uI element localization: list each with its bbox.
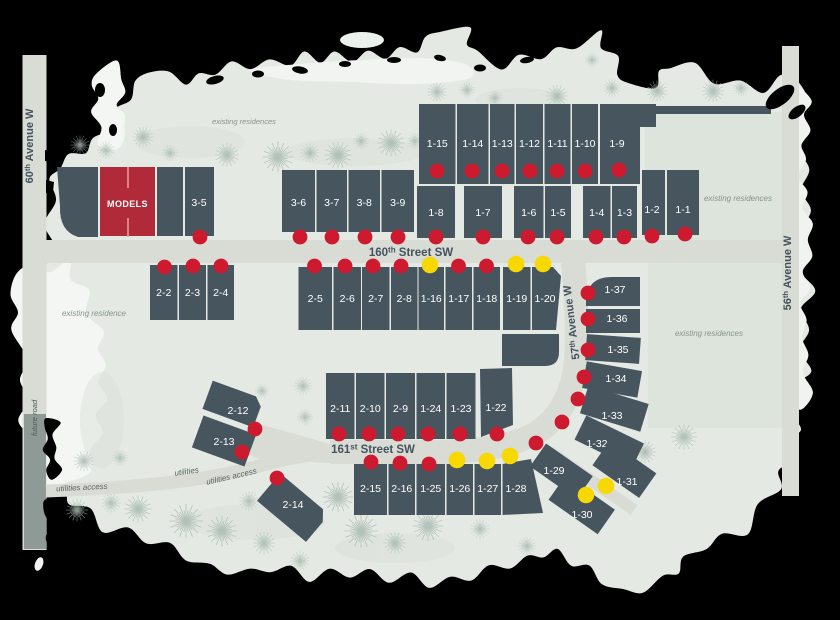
svg-text:2-15: 2-15: [360, 483, 381, 495]
svg-text:2-6: 2-6: [340, 293, 355, 305]
svg-text:1-34: 1-34: [605, 373, 626, 385]
svg-text:1-8: 1-8: [428, 207, 443, 219]
svg-text:future road: future road: [30, 399, 39, 436]
svg-text:1-15: 1-15: [427, 138, 448, 150]
svg-text:3-8: 3-8: [357, 197, 372, 209]
svg-text:1-11: 1-11: [547, 138, 567, 150]
svg-text:1-13: 1-13: [492, 138, 513, 150]
svg-text:1-30: 1-30: [571, 509, 592, 521]
svg-text:1-1: 1-1: [675, 204, 690, 216]
svg-text:1-27: 1-27: [477, 483, 498, 495]
svg-text:161st Street SW: 161st Street SW: [331, 443, 415, 457]
svg-text:2-8: 2-8: [397, 293, 412, 305]
svg-text:1-24: 1-24: [420, 403, 441, 415]
svg-text:MODELS: MODELS: [107, 199, 148, 209]
svg-text:1-5: 1-5: [550, 207, 565, 219]
svg-text:1-31: 1-31: [616, 476, 637, 488]
svg-text:2-3: 2-3: [185, 287, 200, 299]
svg-text:existing residences: existing residences: [212, 117, 276, 126]
svg-text:1-19: 1-19: [506, 293, 527, 305]
svg-text:2-12: 2-12: [227, 405, 248, 417]
svg-text:1-33: 1-33: [601, 410, 622, 422]
svg-text:2-10: 2-10: [360, 403, 381, 415]
svg-text:1-23: 1-23: [450, 403, 471, 415]
svg-text:1-22: 1-22: [485, 402, 506, 414]
svg-text:3-7: 3-7: [324, 197, 339, 209]
svg-text:1-4: 1-4: [589, 207, 604, 219]
svg-text:1-9: 1-9: [609, 138, 624, 150]
svg-text:2-4: 2-4: [213, 287, 228, 299]
svg-text:1-2: 1-2: [644, 204, 659, 216]
svg-text:2-16: 2-16: [391, 483, 412, 495]
svg-text:1-16: 1-16: [421, 293, 442, 305]
svg-text:2-2: 2-2: [156, 287, 171, 299]
svg-text:3-6: 3-6: [291, 197, 306, 209]
svg-text:2-5: 2-5: [308, 293, 323, 305]
svg-text:3-5: 3-5: [191, 197, 206, 209]
svg-text:1-10: 1-10: [574, 138, 595, 150]
svg-text:existing residence: existing residence: [62, 309, 127, 318]
svg-text:1-18: 1-18: [476, 293, 497, 305]
svg-text:1-14: 1-14: [462, 138, 483, 150]
svg-text:existing residences: existing residences: [704, 194, 772, 203]
svg-text:1-29: 1-29: [543, 465, 564, 477]
svg-text:56th Avenue W: 56th Avenue W: [781, 235, 794, 310]
svg-text:1-3: 1-3: [617, 207, 632, 219]
svg-text:1-7: 1-7: [475, 207, 490, 219]
svg-text:1-35: 1-35: [607, 344, 628, 356]
svg-text:1-20: 1-20: [534, 293, 555, 305]
svg-text:1-25: 1-25: [420, 483, 441, 495]
svg-text:1-28: 1-28: [505, 483, 526, 495]
svg-text:3-9: 3-9: [390, 197, 405, 209]
svg-text:existing residences: existing residences: [675, 329, 743, 338]
svg-text:1-26: 1-26: [449, 483, 470, 495]
svg-text:160th Street SW: 160th Street SW: [369, 246, 453, 260]
svg-text:2-11: 2-11: [330, 403, 350, 415]
svg-text:60th Avenue W: 60th Avenue W: [23, 108, 36, 183]
svg-text:2-13: 2-13: [213, 436, 234, 448]
svg-text:1-17: 1-17: [448, 293, 469, 305]
svg-text:2-14: 2-14: [282, 499, 303, 511]
svg-text:1-37: 1-37: [604, 284, 625, 296]
svg-text:1-6: 1-6: [521, 207, 536, 219]
svg-text:2-7: 2-7: [368, 293, 383, 305]
svg-text:1-12: 1-12: [519, 138, 540, 150]
svg-text:2-9: 2-9: [393, 403, 408, 415]
svg-text:1-36: 1-36: [606, 313, 627, 325]
